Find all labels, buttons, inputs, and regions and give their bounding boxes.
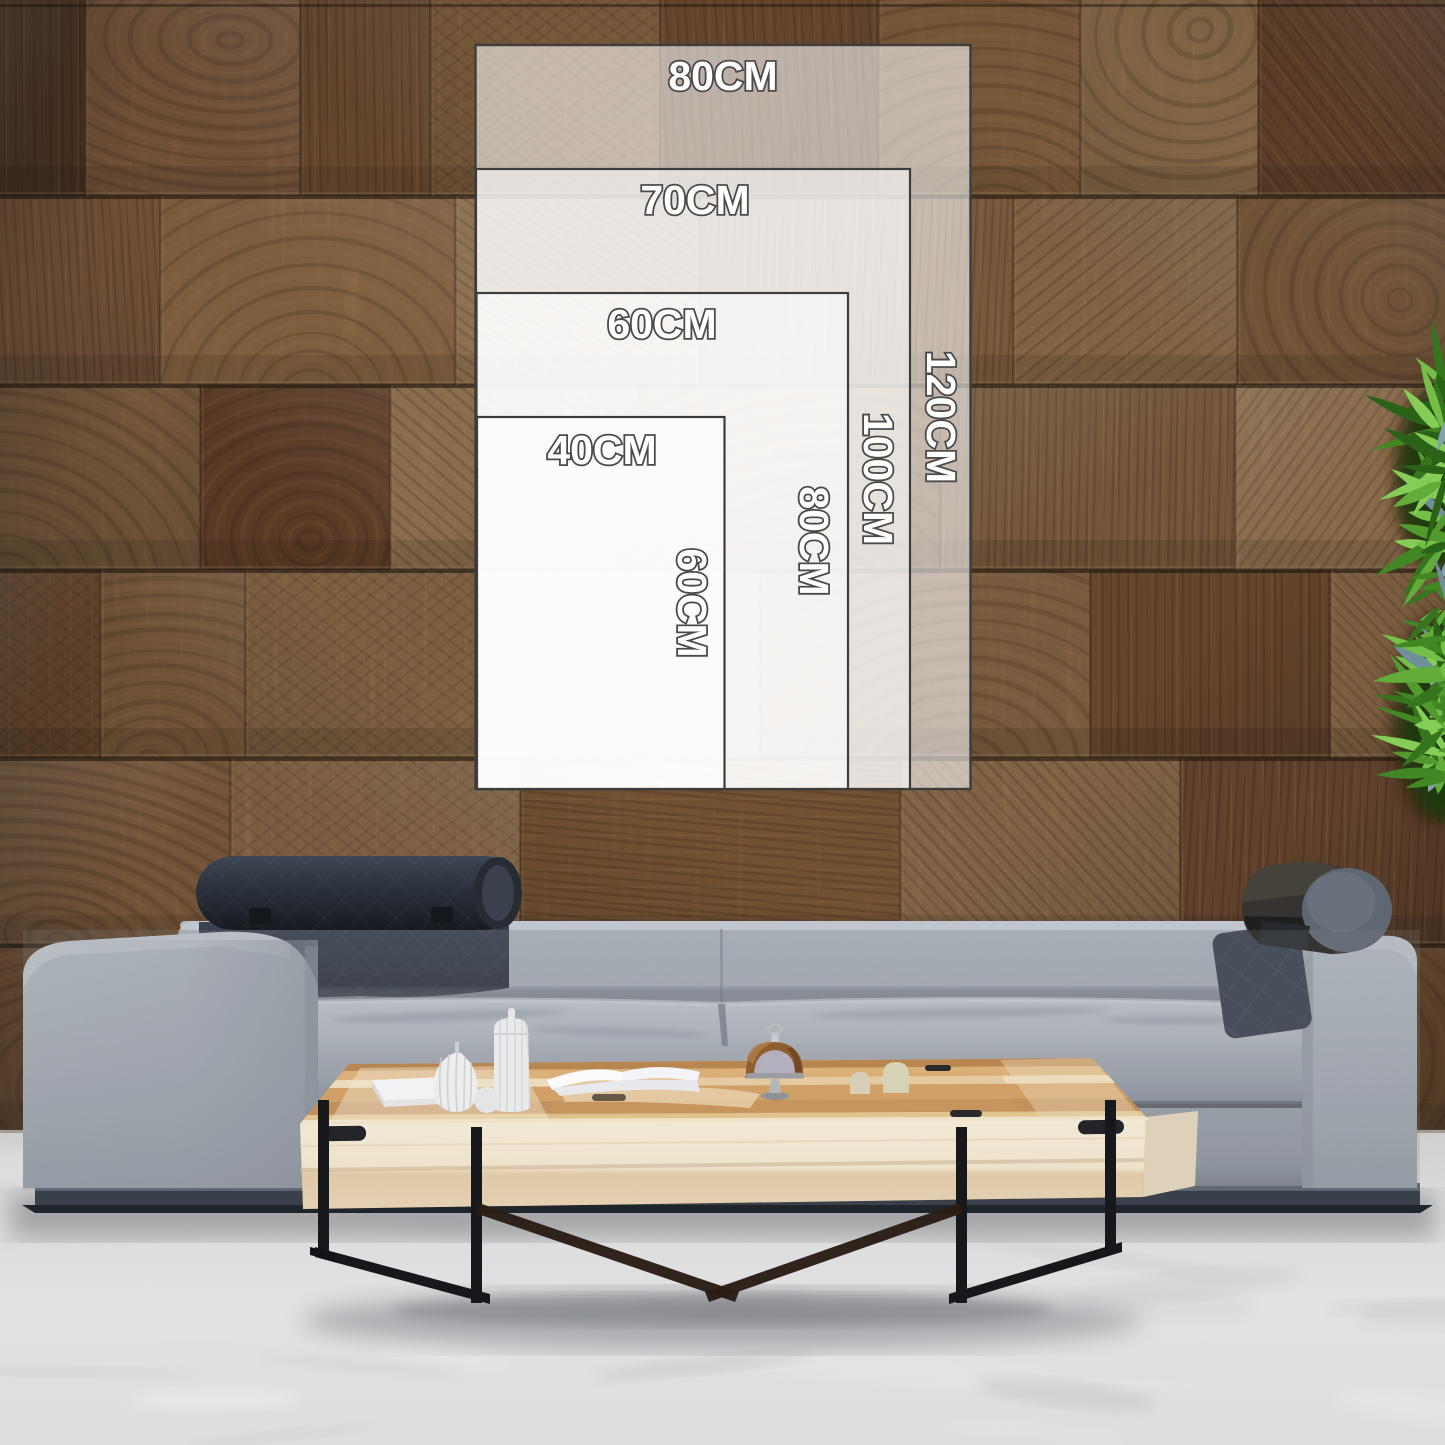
svg-text:70CM: 70CM: [640, 177, 749, 223]
svg-text:120CM: 120CM: [918, 351, 964, 483]
svg-text:40CM: 40CM: [547, 427, 656, 473]
svg-text:100CM: 100CM: [855, 413, 901, 545]
svg-text:80CM: 80CM: [668, 53, 777, 99]
svg-text:80CM: 80CM: [791, 486, 837, 595]
svg-text:60CM: 60CM: [669, 548, 715, 657]
svg-text:60CM: 60CM: [607, 301, 716, 347]
